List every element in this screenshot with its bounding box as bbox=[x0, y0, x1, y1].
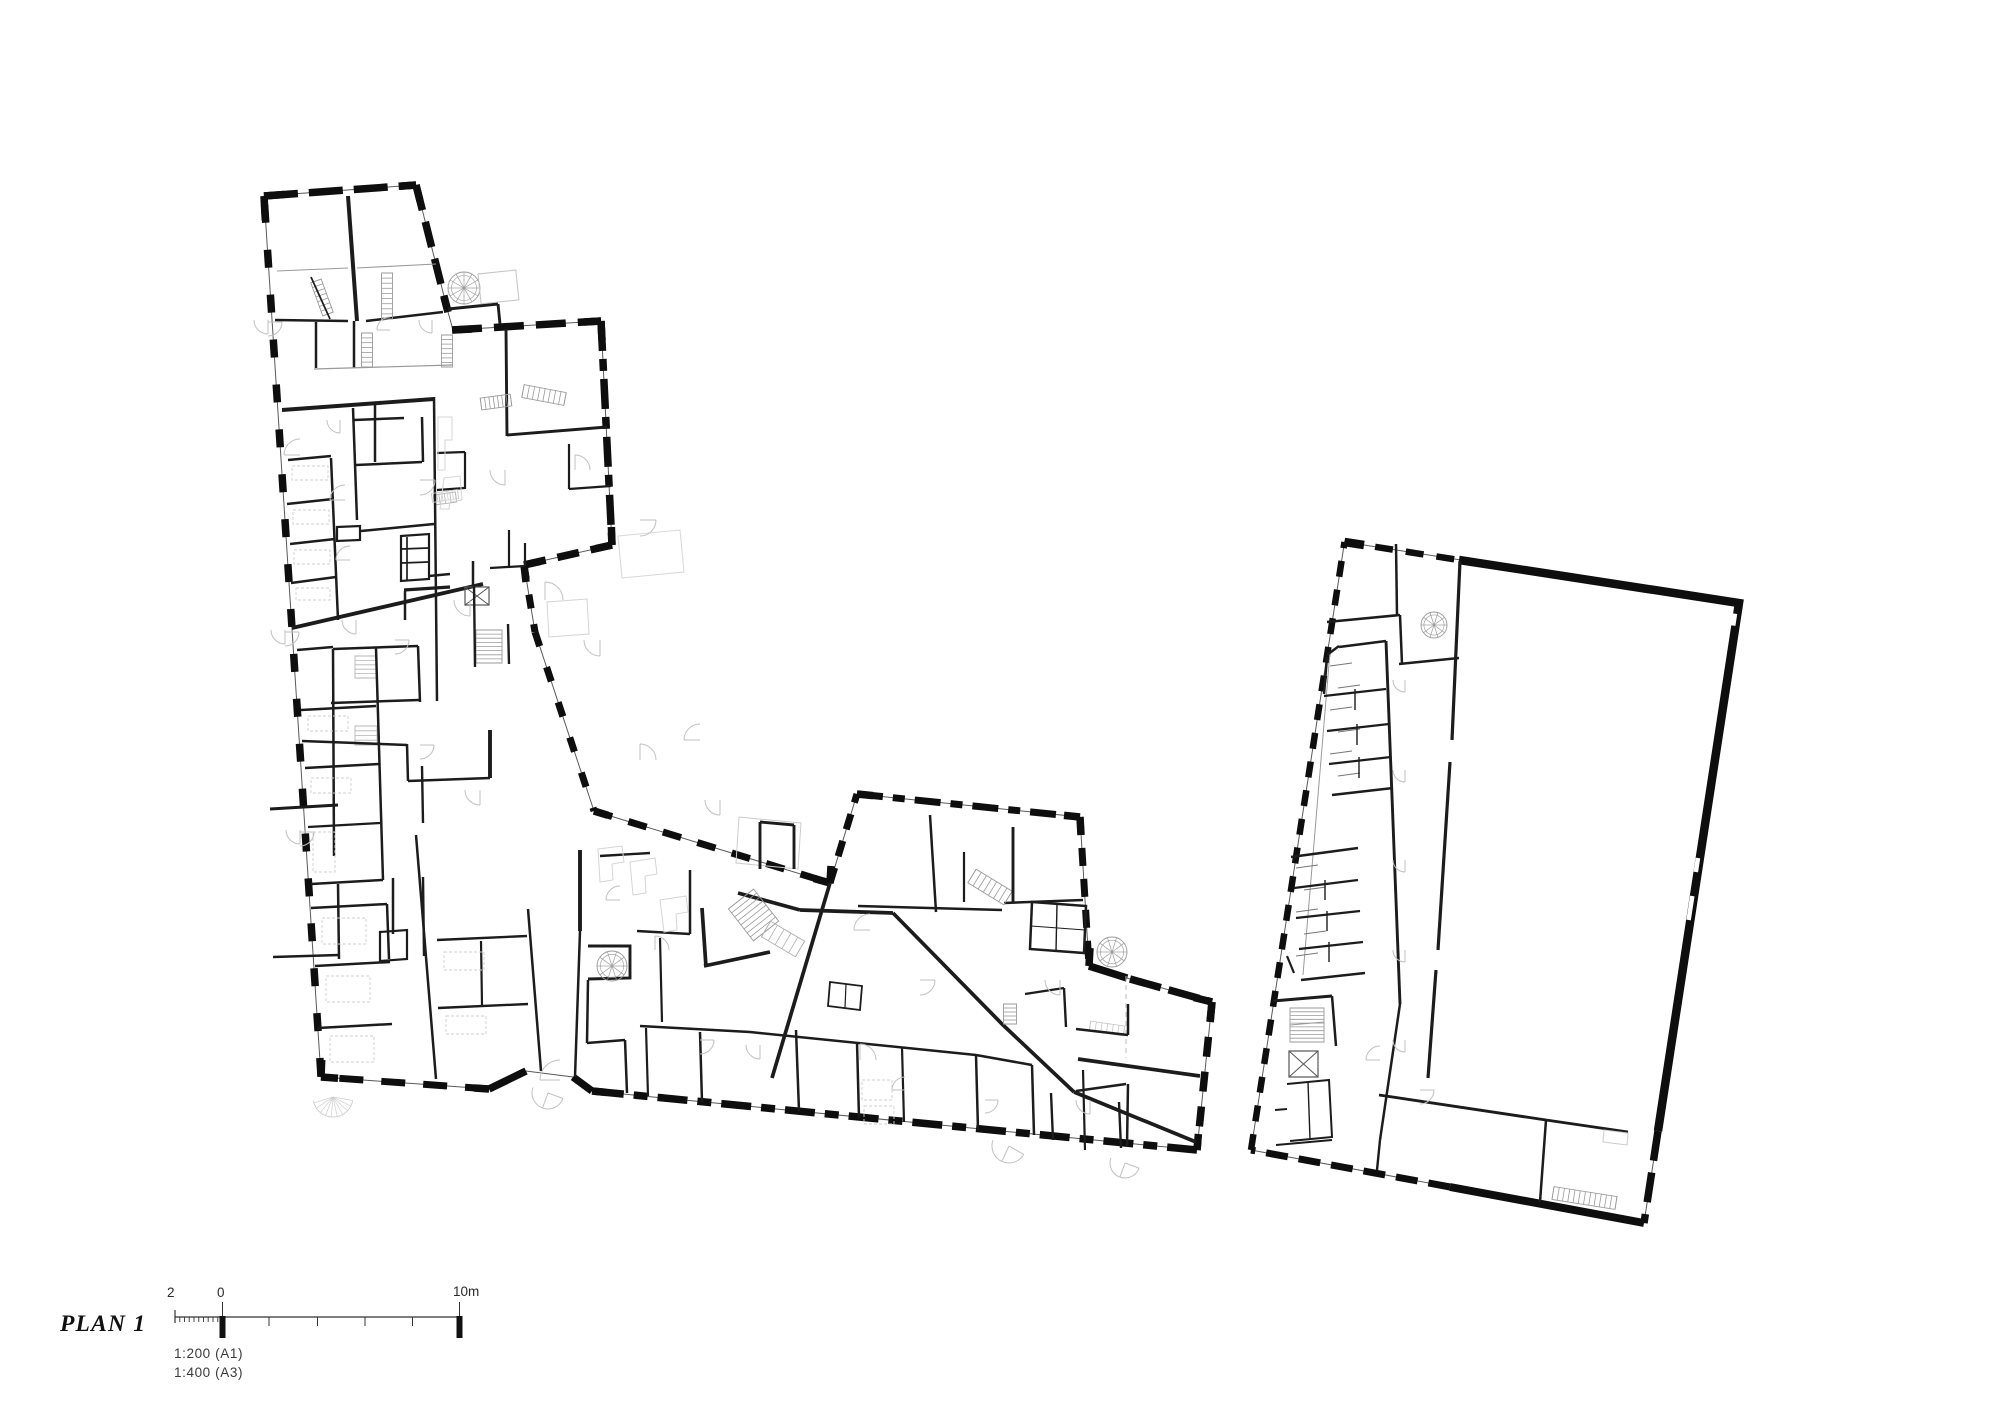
svg-text:PLAN 1: PLAN 1 bbox=[59, 1311, 146, 1337]
svg-text:10m: 10m bbox=[453, 1284, 479, 1299]
svg-text:2: 2 bbox=[167, 1285, 175, 1300]
svg-text:0: 0 bbox=[217, 1285, 225, 1300]
svg-text:1:400 (A3): 1:400 (A3) bbox=[174, 1365, 243, 1380]
svg-text:1:200 (A1): 1:200 (A1) bbox=[174, 1346, 243, 1361]
